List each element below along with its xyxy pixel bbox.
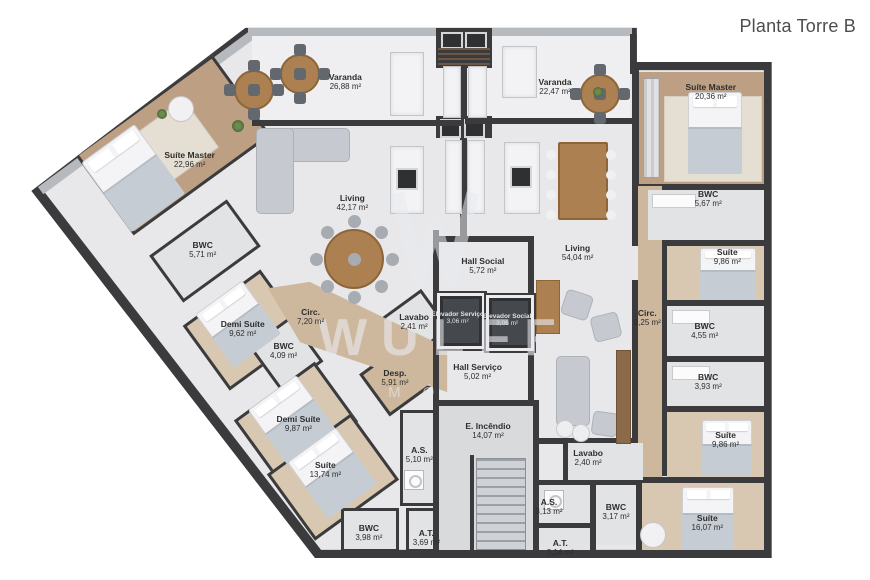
room-label-sui-te-master-1: Suíte Master22,96 m² bbox=[164, 150, 215, 170]
room-label-living-20: Living54,04 m² bbox=[562, 243, 594, 263]
varanda-table-left-2 bbox=[280, 54, 320, 94]
room-label-sui-te-32: Suíte16,07 m² bbox=[692, 513, 724, 533]
round-table-sml bbox=[168, 96, 194, 122]
plant-top-right bbox=[742, 48, 756, 62]
room-label-bwc-25: BWC4,55 m² bbox=[691, 321, 718, 341]
room-label-varanda-19: Varanda22,47 m² bbox=[539, 77, 572, 97]
island-right-varanda bbox=[502, 46, 537, 98]
cooktop-left bbox=[396, 168, 418, 190]
room-label-sui-te-10: Suíte13,74 m² bbox=[310, 460, 342, 480]
room-label-elevador-servic-o-15: Elevador Serviço3,06 m² bbox=[431, 311, 484, 325]
room-label-circ-5: Circ.7,20 m² bbox=[297, 307, 324, 327]
plant-varanda-left bbox=[232, 120, 244, 132]
pouf-1 bbox=[556, 420, 574, 438]
pouf-2 bbox=[572, 424, 590, 442]
bed-suite-master-right bbox=[688, 92, 742, 174]
sofa-right bbox=[556, 356, 590, 426]
room-label-at-31: A.T.3,14 m² bbox=[547, 538, 574, 558]
counter-right-low bbox=[467, 140, 485, 214]
room-label-bwc-22: BWC5,67 m² bbox=[695, 189, 722, 209]
room-label-bwc-3: BWC5,71 m² bbox=[189, 240, 216, 260]
side-table-1607 bbox=[640, 522, 666, 548]
wall-varanda-living-left bbox=[252, 120, 462, 126]
shaft-vent-right bbox=[465, 32, 487, 49]
room-label-demi-sui-te-4: Demi Suíte9,62 m² bbox=[221, 319, 265, 339]
room-label-sui-te-master-21: Suíte Master20,36 m² bbox=[686, 82, 737, 102]
entry-console-right bbox=[536, 280, 560, 334]
room-label-hall-servic-o-17: Hall Serviço5,02 m² bbox=[453, 362, 502, 382]
stair-rail bbox=[470, 455, 474, 550]
room-label-bwc-12: BWC3,98 m² bbox=[355, 523, 382, 543]
counter-left-low bbox=[445, 140, 462, 214]
room-label-as-11: A.S.5,10 m² bbox=[406, 445, 433, 465]
dining-table-right bbox=[558, 142, 608, 220]
stairs bbox=[476, 458, 526, 550]
room-label-sui-te-23: Suíte9,86 m² bbox=[714, 247, 741, 267]
suite-master-right-closet bbox=[643, 78, 660, 178]
varanda-table-left-1 bbox=[234, 70, 274, 110]
island-left-varanda bbox=[390, 52, 424, 116]
tv-panel-right bbox=[616, 350, 631, 444]
room-label-varanda-0: Varanda26,88 m² bbox=[329, 72, 362, 92]
room-label-bwc-30: BWC3,17 m² bbox=[602, 502, 629, 522]
room-label-circ-24: Circ.8,25 m² bbox=[634, 308, 661, 328]
vanity-bwc567 bbox=[652, 194, 696, 208]
room-label-bwc-7: BWC4,09 m² bbox=[270, 341, 297, 361]
counter-tall-left bbox=[443, 66, 461, 118]
room-label-lavabo-28: Lavabo2,40 m² bbox=[573, 448, 603, 468]
room-label-bwc-26: BWC3,93 m² bbox=[695, 372, 722, 392]
room-label-hall-social-14: Hall Social5,72 m² bbox=[461, 256, 504, 276]
floor-plan: WULFF IMÓVEIS Varanda26,88 m²Suíte Maste… bbox=[0, 0, 870, 580]
room-label-living-2: Living42,17 m² bbox=[337, 193, 369, 213]
wall-hall-social-top bbox=[433, 236, 534, 242]
room-label-elevador-social-16: Elevador Social3,06 m² bbox=[483, 312, 531, 326]
cooktop-right bbox=[510, 166, 532, 188]
room-label-desp-8: Desp.5,91 m² bbox=[381, 368, 408, 388]
page-title: Planta Torre B bbox=[739, 16, 856, 37]
room-label-e-ince-ndio-18: E. Incêndio14,07 m² bbox=[465, 421, 510, 441]
plant-varanda-left-2 bbox=[157, 109, 167, 119]
room-label-demi-sui-te-9: Demi Suíte9,87 m² bbox=[276, 414, 320, 434]
plant-table-right bbox=[593, 87, 603, 97]
washer-as510 bbox=[404, 470, 424, 490]
floor-plan-page: Planta Torre B bbox=[0, 0, 870, 580]
sofa-left-vertical bbox=[256, 128, 294, 214]
counter-tall-right bbox=[468, 66, 487, 118]
shaft-vent-left bbox=[441, 32, 463, 49]
dining-table-left bbox=[324, 229, 384, 289]
shaft-louvers bbox=[438, 48, 490, 66]
wall-smr-left bbox=[632, 70, 639, 188]
room-label-sui-te-27: Suíte9,86 m² bbox=[712, 430, 739, 450]
room-label-lavabo-6: Lavabo2,41 m² bbox=[399, 312, 429, 332]
room-label-as-29: A.S.3,13 m² bbox=[535, 497, 562, 517]
room-label-at-13: A.T.3,69 m² bbox=[413, 528, 440, 548]
wall-step bbox=[630, 34, 637, 74]
wall-varanda-living-right bbox=[465, 118, 633, 124]
